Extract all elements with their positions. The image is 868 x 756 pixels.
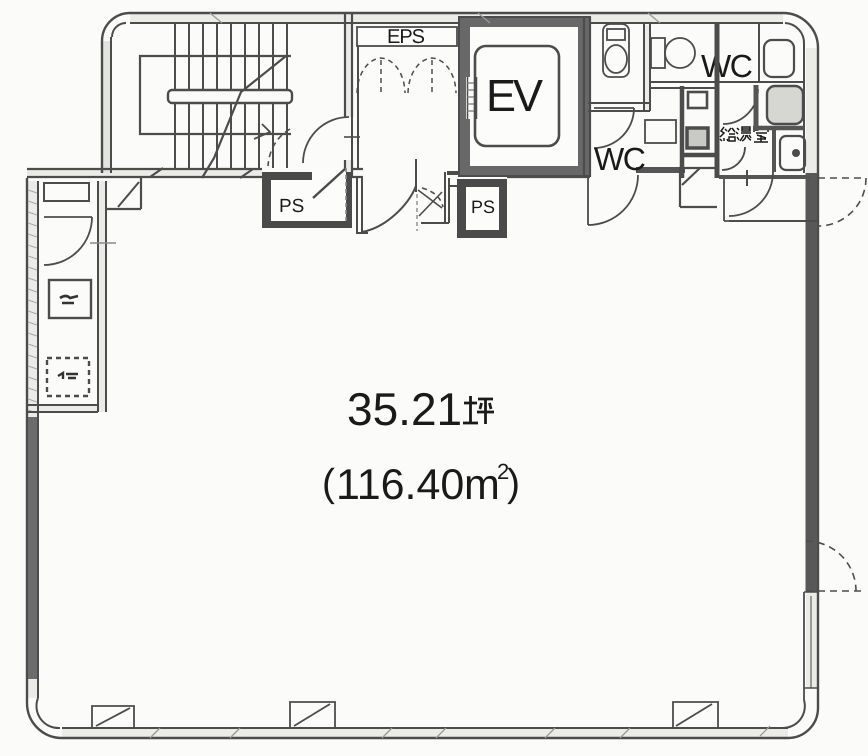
svg-text:WC: WC xyxy=(701,48,752,84)
svg-text:35.21: 35.21 xyxy=(347,383,462,435)
svg-text:116.40: 116.40 xyxy=(336,461,464,509)
svg-text:EPS: EPS xyxy=(387,26,425,48)
svg-text:(: ( xyxy=(322,462,335,505)
svg-text:m: m xyxy=(464,461,500,509)
svg-text:PS: PS xyxy=(279,196,304,217)
svg-text:WC: WC xyxy=(594,141,645,177)
svg-text:): ) xyxy=(507,462,520,505)
svg-text:EV: EV xyxy=(486,70,543,121)
svg-text:PS: PS xyxy=(471,197,495,217)
